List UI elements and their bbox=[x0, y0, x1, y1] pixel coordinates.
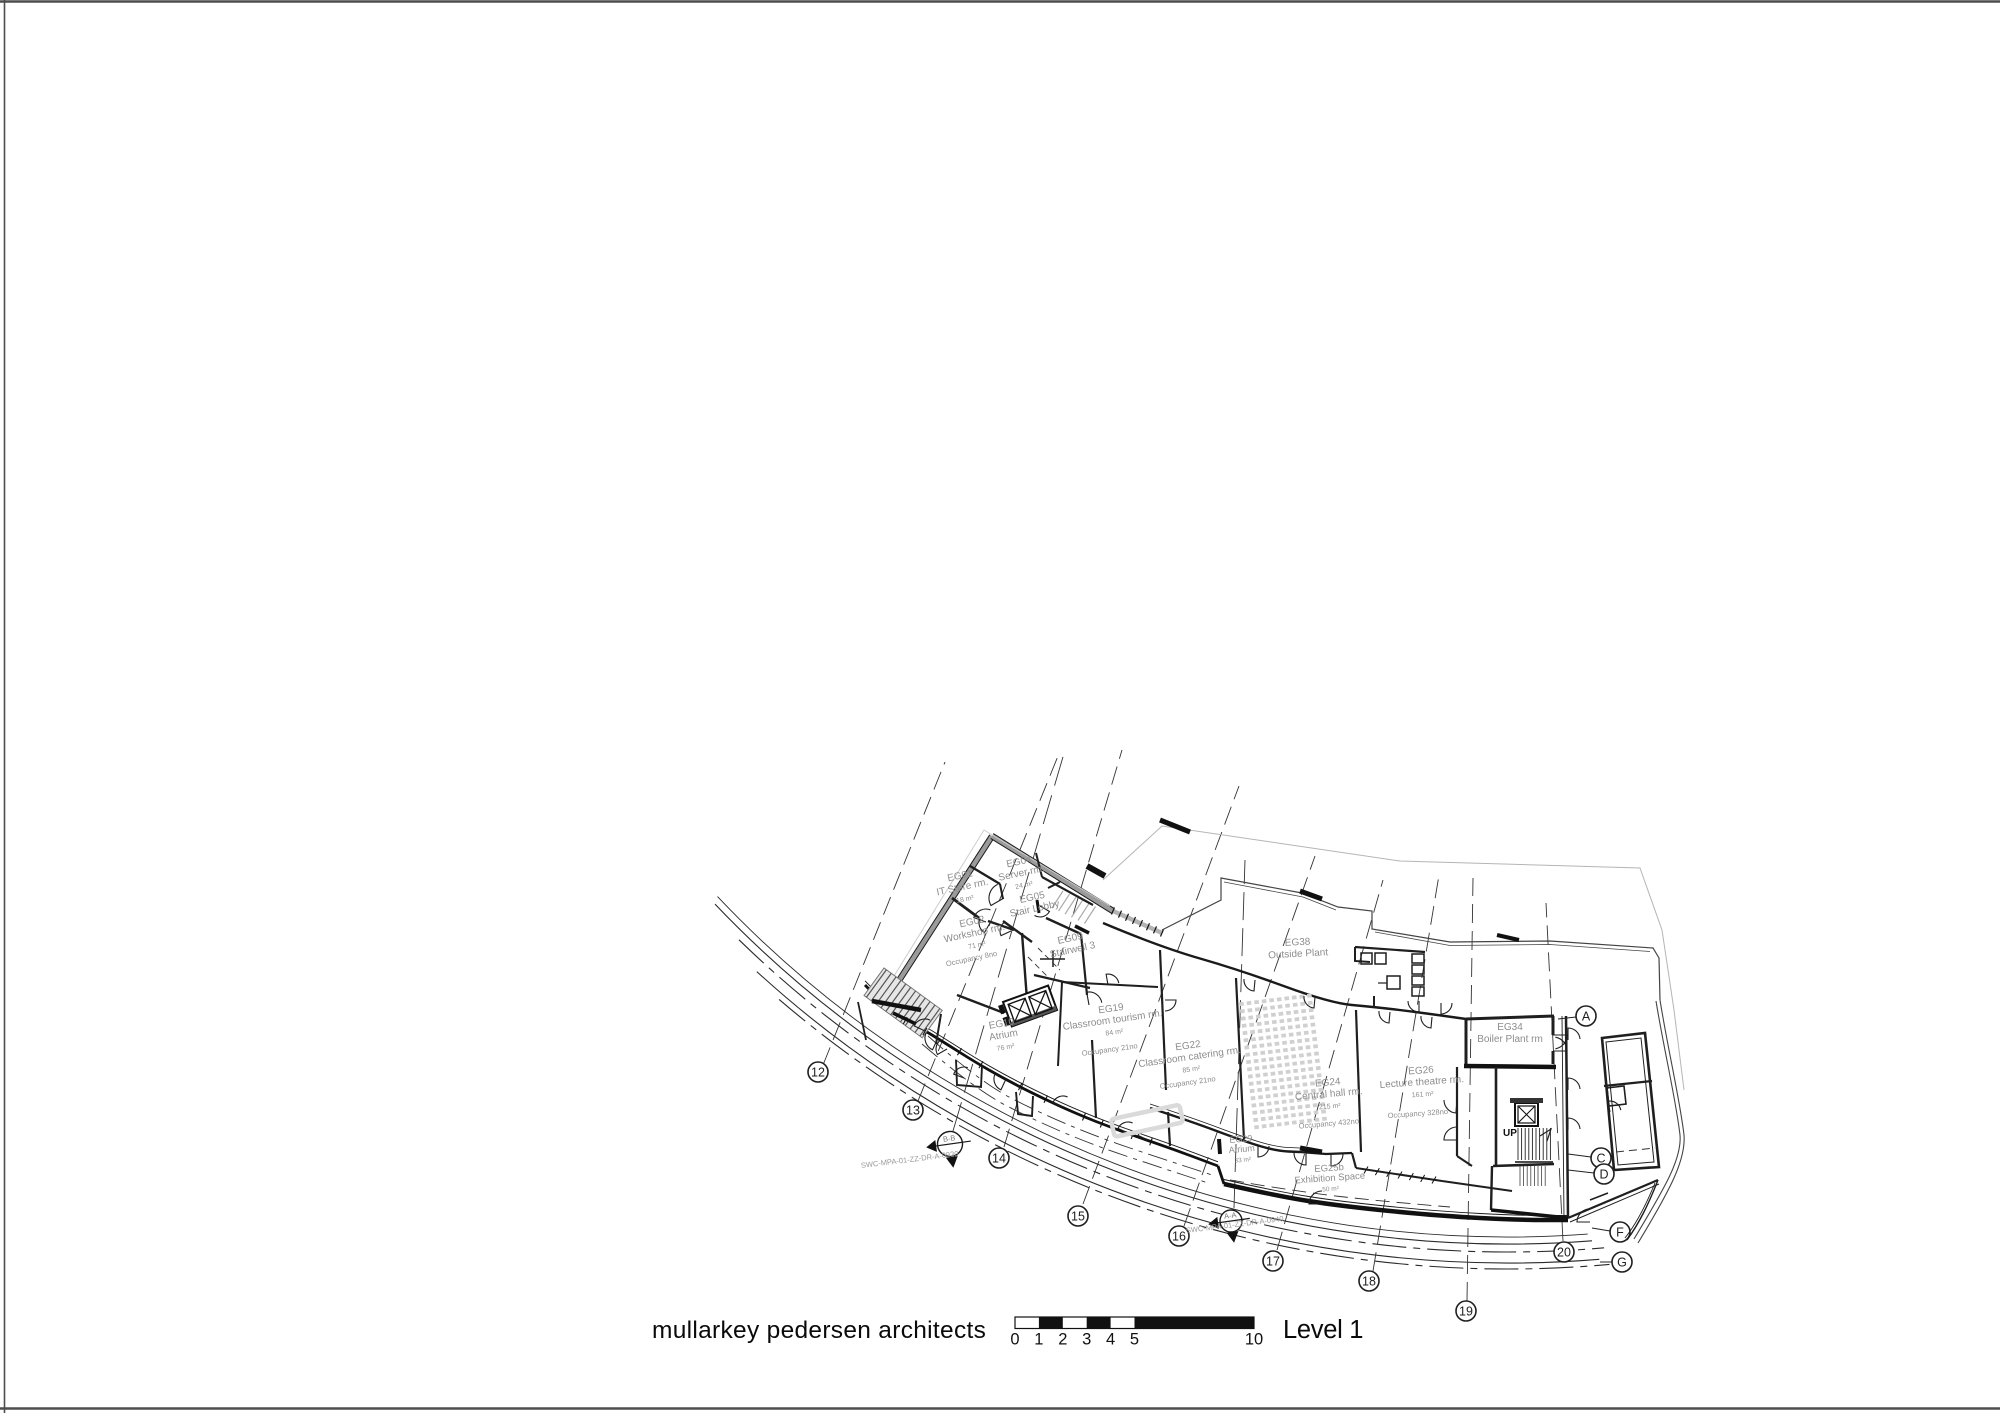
svg-text:1: 1 bbox=[1034, 1331, 1043, 1349]
svg-text:5: 5 bbox=[1130, 1331, 1139, 1349]
svg-text:mullarkey pedersen architects: mullarkey pedersen architects bbox=[652, 1317, 986, 1344]
svg-text:B-B: B-B bbox=[942, 1133, 956, 1144]
svg-text:18: 18 bbox=[1362, 1275, 1376, 1289]
svg-text:20: 20 bbox=[1557, 1246, 1571, 1260]
svg-text:4: 4 bbox=[1106, 1331, 1115, 1349]
svg-text:17: 17 bbox=[1266, 1255, 1280, 1269]
svg-text:2: 2 bbox=[1058, 1331, 1067, 1349]
svg-text:EG38: EG38 bbox=[1285, 937, 1312, 949]
svg-text:Boiler Plant rm: Boiler Plant rm bbox=[1477, 1034, 1543, 1045]
svg-text:10: 10 bbox=[1245, 1331, 1263, 1349]
svg-text:14: 14 bbox=[992, 1152, 1006, 1166]
svg-text:D: D bbox=[1599, 1168, 1608, 1182]
svg-text:13: 13 bbox=[906, 1104, 920, 1118]
svg-text:15: 15 bbox=[1071, 1210, 1085, 1224]
svg-text:50 m²: 50 m² bbox=[1322, 1185, 1340, 1193]
svg-text:G: G bbox=[1617, 1256, 1627, 1270]
svg-text:EG34: EG34 bbox=[1497, 1022, 1523, 1033]
svg-text:F: F bbox=[1616, 1226, 1624, 1240]
svg-text:3: 3 bbox=[1082, 1331, 1091, 1349]
svg-text:A: A bbox=[1582, 1010, 1591, 1024]
svg-text:16: 16 bbox=[1172, 1230, 1186, 1244]
svg-text:0: 0 bbox=[1010, 1331, 1019, 1349]
svg-text:12: 12 bbox=[811, 1066, 825, 1080]
svg-text:Level 1: Level 1 bbox=[1283, 1316, 1363, 1344]
svg-text:UP: UP bbox=[1503, 1128, 1517, 1139]
svg-text:19: 19 bbox=[1459, 1305, 1473, 1319]
